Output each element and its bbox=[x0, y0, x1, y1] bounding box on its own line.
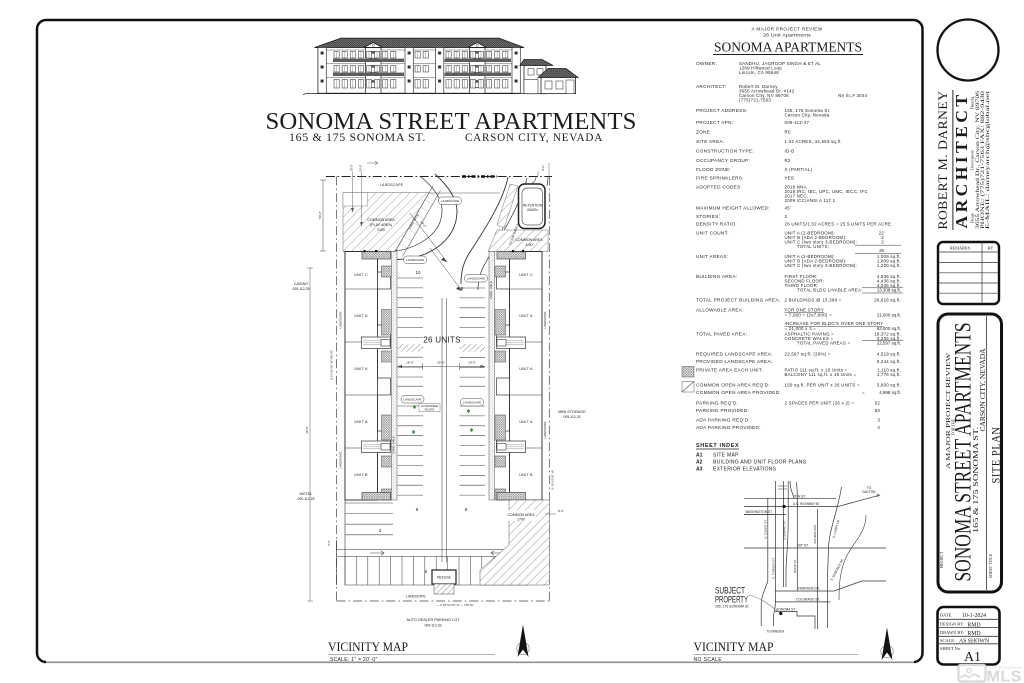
svg-text:165 & 175 SONOMA ST.: 165 & 175 SONOMA ST. bbox=[289, 132, 426, 144]
svg-text:BUILDING AREA:: BUILDING AREA: bbox=[696, 274, 737, 279]
svg-text:Carson City, Nevada: Carson City, Nevada bbox=[785, 113, 830, 118]
svg-text:AUTO DEALER PARKING LOT: AUTO DEALER PARKING LOT bbox=[406, 618, 460, 622]
svg-text:10T′ ST.: 10T′ ST. bbox=[797, 544, 809, 548]
svg-text:UNIT A: UNIT A bbox=[519, 420, 533, 424]
svg-text:4,998 sq.ft.: 4,998 sq.ft. bbox=[879, 390, 901, 395]
svg-text:CONC. WALK: CONC. WALK bbox=[392, 436, 396, 454]
svg-text:5'-0": 5'-0" bbox=[327, 540, 331, 546]
svg-text:REFUSE: REFUSE bbox=[437, 576, 451, 580]
svg-text:(775)721-7563: (775)721-7563 bbox=[739, 98, 771, 103]
svg-text:BUILDING AND UNIT FLOOR PL: BUILDING AND UNIT FLOOR PLANS bbox=[713, 460, 807, 466]
svg-text:10: 10 bbox=[415, 270, 421, 275]
svg-text:R2: R2 bbox=[785, 158, 791, 163]
svg-text:N 19°52′30″ W 300.00′: N 19°52′30″ W 300.00′ bbox=[330, 350, 334, 381]
svg-text:SITE MAP: SITE MAP bbox=[713, 453, 739, 459]
svg-text:U.S. HIGHWAY 50: U.S. HIGHWAY 50 bbox=[793, 502, 820, 506]
svg-text:MOTEL: MOTEL bbox=[299, 492, 312, 496]
svg-text:SITE PLAN: SITE PLAN bbox=[991, 426, 1003, 483]
svg-text:UNIT A: UNIT A bbox=[519, 367, 533, 371]
svg-text:X (PARTIAL): X (PARTIAL) bbox=[785, 167, 813, 172]
svg-text:ARCHITECT:: ARCHITECT: bbox=[696, 84, 727, 89]
svg-text:22,597 sq.ft. (20%) =: 22,597 sq.ft. (20%) = bbox=[785, 352, 831, 357]
svg-text:RMD: RMD bbox=[967, 622, 980, 628]
svg-text:TOTAL PAVED AREAS =: TOTAL PAVED AREAS = bbox=[797, 341, 851, 346]
svg-text:PROVIDED LANDSCAPE AREA:: PROVIDED LANDSCAPE AREA: bbox=[696, 359, 773, 364]
svg-text:2100: 2100 bbox=[377, 228, 385, 232]
svg-text:DRAWN BY:: DRAWN BY: bbox=[940, 630, 964, 635]
svg-text:3,900 sq.ft.: 3,900 sq.ft. bbox=[877, 383, 901, 388]
svg-text:ADA PARKING PROVIDED:: ADA PARKING PROVIDED: bbox=[696, 425, 761, 430]
svg-text:OWNER:: OWNER: bbox=[696, 61, 717, 66]
svg-text:SONOMA STREET APARTMENTS: SONOMA STREET APARTMENTS bbox=[266, 108, 637, 135]
svg-text:ALLOWABLE AREA:: ALLOWABLE AREA: bbox=[696, 308, 744, 313]
svg-text:ZONE:: ZONE: bbox=[696, 130, 712, 135]
svg-text:30'-0": 30'-0" bbox=[305, 426, 309, 434]
svg-text:TO MINDEN: TO MINDEN bbox=[766, 630, 785, 634]
svg-text:26 UNITS: 26 UNITS bbox=[423, 336, 461, 345]
svg-text:A MAJOR PROJECT REVIEW: A MAJOR PROJECT REVIEW bbox=[752, 27, 823, 32]
svg-text:ARCHITECT: ARCHITECT bbox=[952, 92, 971, 229]
svg-text:4,50: 4,50 bbox=[526, 243, 533, 247]
svg-text:MLS: MLS bbox=[987, 669, 1022, 683]
svg-text:ROOP ST.: ROOP ST. bbox=[793, 559, 797, 573]
svg-text:63,000 sq.ft.: 63,000 sq.ft. bbox=[877, 326, 901, 331]
svg-text:STEWART ST.: STEWART ST. bbox=[783, 520, 787, 540]
svg-text:SITE AREA:: SITE AREA: bbox=[696, 139, 725, 144]
svg-text:2 BUILDINGS @ 13,308 =: 2 BUILDINGS @ 13,308 = bbox=[785, 298, 842, 303]
svg-text:LANDSCAPE: LANDSCAPE bbox=[339, 311, 343, 328]
svg-text:DENSITY RATIO:: DENSITY RATIO: bbox=[696, 222, 737, 227]
svg-text:CONSTRUCTION TYPE:: CONSTRUCTION TYPE: bbox=[696, 149, 754, 154]
svg-text:CARSON CITY, NEVADA: CARSON CITY, NEVADA bbox=[465, 132, 603, 144]
svg-text:2 SPACES PER UNIT (26 x 2): 2 SPACES PER UNIT (26 x 2) = bbox=[785, 401, 855, 406]
svg-text:9'-6": 9'-6" bbox=[541, 165, 545, 171]
svg-text:ID-B: ID-B bbox=[785, 149, 795, 154]
svg-text:26'-0": 26'-0" bbox=[437, 361, 445, 365]
svg-text:PROJECT: PROJECT bbox=[939, 551, 944, 568]
svg-text:26,616 sq.ft.: 26,616 sq.ft. bbox=[874, 298, 901, 303]
svg-text:009-112-25: 009-112-25 bbox=[297, 497, 314, 501]
svg-text:VICINITY MAP: VICINITY MAP bbox=[328, 640, 408, 654]
svg-text:53: 53 bbox=[875, 408, 881, 413]
svg-text:RC: RC bbox=[785, 130, 792, 135]
svg-text:TOTAL BLDG LIVABLE AREA:: TOTAL BLDG LIVABLE AREA: bbox=[797, 288, 863, 293]
svg-text:4,519 sq.ft.: 4,519 sq.ft. bbox=[877, 352, 901, 357]
svg-text:SHEET INDEX: SHEET INDEX bbox=[696, 443, 739, 449]
svg-text:EXTERIOR ELEVATIONS: EXTERIOR ELEVATIONS bbox=[713, 467, 777, 473]
svg-text:DAYTON: DAYTON bbox=[863, 490, 877, 494]
svg-text:18'-0": 18'-0" bbox=[406, 361, 414, 365]
svg-text:A2: A2 bbox=[696, 460, 703, 466]
svg-text:TOTAL PAVED AREA:: TOTAL PAVED AREA: bbox=[696, 332, 747, 337]
svg-text:S. CURRY ST.: S. CURRY ST. bbox=[764, 519, 768, 539]
svg-text:52: 52 bbox=[875, 401, 881, 406]
svg-text:NO SCALE: NO SCALE bbox=[694, 657, 723, 663]
svg-text:009-112-25: 009-112-25 bbox=[292, 287, 309, 291]
svg-text:8'-0": 8'-0" bbox=[558, 509, 564, 513]
svg-text:ROBERT M. DARNEY: ROBERT M. DARNEY bbox=[935, 90, 950, 229]
svg-text:PRIVATE AREA EACH UNIT:: PRIVATE AREA EACH UNIT: bbox=[696, 368, 763, 373]
svg-text:RETENTION: RETENTION bbox=[523, 204, 543, 208]
svg-text:=: = bbox=[862, 390, 865, 395]
svg-text:A1: A1 bbox=[964, 650, 981, 665]
svg-text:COMMON AREA: COMMON AREA bbox=[515, 238, 543, 242]
svg-text:10-1-2024: 10-1-2024 bbox=[962, 613, 986, 619]
svg-text:UNIT B: UNIT B bbox=[519, 473, 533, 477]
svg-text:5,244 sq.ft.: 5,244 sq.ft. bbox=[877, 359, 901, 364]
svg-text:PROJECT APN:: PROJECT APN: bbox=[696, 120, 733, 125]
svg-text:UNIT AREAS:: UNIT AREAS: bbox=[696, 254, 728, 259]
svg-text:UNIT A: UNIT A bbox=[354, 420, 368, 424]
svg-text:VICINITY MAP: VICINITY MAP bbox=[694, 640, 774, 654]
svg-text:26: 26 bbox=[879, 248, 884, 253]
svg-text:COMMON AREA: COMMON AREA bbox=[507, 513, 535, 517]
svg-text:CASINO: CASINO bbox=[294, 282, 309, 286]
svg-text:SCALE: 1″ = 20′-0″: SCALE: 1″ = 20′-0″ bbox=[330, 657, 378, 663]
svg-text:SALIMAN RD.: SALIMAN RD. bbox=[813, 524, 817, 543]
svg-text:2: 2 bbox=[881, 240, 884, 245]
svg-text:E-MAIL: darneyarch@sbcgloba: E-MAIL: darneyarch@sbcglobal.net bbox=[985, 90, 991, 229]
svg-text:165 & 175 SONOMA ST.: 165 & 175 SONOMA ST. bbox=[971, 427, 980, 533]
svg-text:BALCONY 111 sq.ft. x 16 Units: BALCONY 111 sq.ft. x 16 Units = bbox=[785, 372, 857, 377]
svg-text:LANDSCAPE: LANDSCAPE bbox=[543, 421, 547, 438]
svg-text:RMD: RMD bbox=[967, 631, 980, 637]
svg-text:STORIES:: STORIES: bbox=[696, 214, 720, 219]
svg-text:1700: 1700 bbox=[517, 518, 525, 522]
svg-text:TOTAL UNITS:: TOTAL UNITS: bbox=[797, 244, 829, 249]
svg-text:SHEET TITLE: SHEET TITLE bbox=[988, 553, 993, 578]
svg-text:3: 3 bbox=[785, 214, 788, 219]
svg-text:LANDSCAPE: LANDSCAPE bbox=[543, 311, 547, 328]
svg-text:18'-0": 18'-0" bbox=[468, 361, 476, 365]
svg-text:50'-0": 50'-0" bbox=[318, 211, 322, 219]
svg-text:FAIRVIEW DR.: FAIRVIEW DR. bbox=[798, 587, 820, 591]
svg-text:OCCUPANCY GROUP:: OCCUPANCY GROUP: bbox=[696, 158, 750, 163]
svg-text:LANDSCAPE: LANDSCAPE bbox=[463, 401, 481, 405]
svg-text:ROUTE: ROUTE bbox=[425, 408, 435, 412]
svg-text:N 19°52′30″ W: N 19°52′30″ W bbox=[551, 470, 555, 490]
svg-text:S. CARSON ST.: S. CARSON ST. bbox=[771, 557, 775, 579]
svg-text:MINI STORAGE: MINI STORAGE bbox=[558, 410, 586, 414]
svg-text:TOTAL PROJECT BUILDING AREA: TOTAL PROJECT BUILDING AREA: bbox=[696, 298, 781, 303]
svg-text:LANDSCAPE: LANDSCAPE bbox=[441, 199, 459, 203]
svg-text:UNIT A: UNIT A bbox=[354, 314, 368, 318]
svg-text:CARSON CITY, NEVADA: CARSON CITY, NEVADA bbox=[978, 348, 987, 432]
svg-text:SONOMA APARTMENTS: SONOMA APARTMENTS bbox=[714, 40, 862, 55]
svg-text:UNIT B: UNIT B bbox=[354, 473, 368, 477]
svg-text:165, 175 SONOMA St.: 165, 175 SONOMA St. bbox=[715, 605, 749, 609]
svg-text:UNIT C: UNIT C bbox=[354, 273, 368, 277]
svg-text:(PLAY AREA): (PLAY AREA) bbox=[370, 223, 392, 227]
svg-text:150 sq.ft. PER UNIT x 26 UNI: 150 sq.ft. PER UNIT x 26 UNITS = bbox=[785, 383, 861, 388]
svg-text:YES: YES bbox=[785, 176, 795, 181]
svg-text:UNIT C: UNIT C bbox=[519, 273, 533, 277]
svg-text:PARKING PROVIDED:: PARKING PROVIDED: bbox=[696, 408, 749, 413]
svg-text:= 7,000 + (2x7,000) =: = 7,000 + (2x7,000) = bbox=[785, 312, 833, 317]
svg-text:PROPERTY: PROPERTY bbox=[715, 595, 748, 605]
svg-text:1,776 sq.ft.: 1,776 sq.ft. bbox=[877, 372, 901, 377]
svg-text:19'-6": 19'-6" bbox=[350, 164, 354, 171]
svg-text:PARKING REQ'D:: PARKING REQ'D: bbox=[696, 401, 738, 406]
svg-text:WASHINGTON ST.: WASHINGTON ST. bbox=[745, 510, 772, 514]
svg-text:A1: A1 bbox=[696, 453, 703, 459]
svg-text:SHEET No.: SHEET No. bbox=[940, 646, 961, 651]
svg-text:LANDSCAPE: LANDSCAPE bbox=[380, 183, 404, 187]
svg-text:45': 45' bbox=[785, 206, 791, 211]
svg-text:UNIT A: UNIT A bbox=[519, 314, 533, 318]
svg-text:009-112-33: 009-112-33 bbox=[424, 624, 441, 628]
svg-text:009-112-25: 009-112-25 bbox=[563, 415, 580, 419]
svg-text:2009 ICC/ANSI A 117.1: 2009 ICC/ANSI A 117.1 bbox=[785, 198, 836, 203]
svg-text:009-112-47: 009-112-47 bbox=[785, 120, 810, 125]
svg-text:26 UNITS/1.02 ACRES = 25.5: 26 UNITS/1.02 ACRES = 25.5 UNITS PER ACR… bbox=[785, 222, 892, 227]
svg-text:COLORADO ST.: COLORADO ST. bbox=[796, 598, 820, 602]
svg-text:= 21,000 x 3 =: = 21,000 x 3 = bbox=[785, 326, 817, 331]
svg-text:ADOPTED CODES:: ADOPTED CODES: bbox=[696, 185, 742, 190]
svg-text:FIRE SPRINKLERS:: FIRE SPRINKLERS: bbox=[696, 176, 744, 181]
svg-text:MAXIMUM HEIGHT ALLOWED:: MAXIMUM HEIGHT ALLOWED: bbox=[696, 206, 770, 211]
svg-text:AS SHOWN: AS SHOWN bbox=[959, 639, 990, 645]
svg-text:26'-0": 26'-0" bbox=[359, 164, 363, 171]
svg-text:13,308 sq.ft.: 13,308 sq.ft. bbox=[877, 288, 901, 293]
svg-text:REMARKS: REMARKS bbox=[950, 246, 971, 251]
svg-text:COMMON AREA: COMMON AREA bbox=[367, 218, 395, 222]
svg-text:BY: BY bbox=[988, 246, 994, 251]
svg-text:SCALE:: SCALE: bbox=[940, 638, 955, 643]
svg-text:LANDSCAPE: LANDSCAPE bbox=[406, 595, 425, 599]
svg-text:LANDSCAPE: LANDSCAPE bbox=[406, 258, 424, 262]
svg-text:Lincoln, CA 95648: Lincoln, CA 95648 bbox=[739, 70, 779, 75]
svg-text:DESIGN BY:: DESIGN BY: bbox=[940, 622, 964, 627]
svg-text:5TH ST.: 5TH ST. bbox=[794, 494, 806, 498]
svg-text:COMMON OPEN AREA PROVIDED:: COMMON OPEN AREA PROVIDED: bbox=[696, 390, 781, 395]
svg-text:A3: A3 bbox=[696, 467, 703, 473]
svg-text:SONOMA ST.: SONOMA ST. bbox=[776, 607, 796, 611]
svg-text:COMMON OPEN AREA REQ'D:: COMMON OPEN AREA REQ'D: bbox=[696, 383, 770, 388]
svg-text:LANDSCAPE: LANDSCAPE bbox=[339, 451, 343, 468]
svg-text:22,597 sq.ft.: 22,597 sq.ft. bbox=[877, 341, 901, 346]
svg-text:26 Unit Apartments: 26 Unit Apartments bbox=[763, 33, 812, 38]
svg-text:DATE:: DATE: bbox=[940, 613, 952, 618]
svg-text:1,200 sq.ft.: 1,200 sq.ft. bbox=[877, 263, 901, 268]
svg-text:REQUIRED LANDSCAPE AREA:: REQUIRED LANDSCAPE AREA: bbox=[696, 352, 773, 357]
svg-text:LANDSCAPE: LANDSCAPE bbox=[403, 398, 421, 402]
svg-text:1.02 ACRES, 44,553 sq.ft.: 1.02 ACRES, 44,553 sq.ft. bbox=[785, 139, 843, 144]
svg-text:FLOOD ZONE:: FLOOD ZONE: bbox=[696, 167, 731, 172]
svg-text:— S 89°52′30″ W — 150.00′: — S 89°52′30″ W — 150.00′ bbox=[436, 603, 474, 607]
svg-text:NV lic.# 3044: NV lic.# 3044 bbox=[838, 93, 868, 98]
svg-text:UNIT A: UNIT A bbox=[354, 367, 368, 371]
svg-text:LANDSCAPE: LANDSCAPE bbox=[467, 277, 485, 281]
svg-text:21,000 sq.ft.: 21,000 sq.ft. bbox=[877, 312, 901, 317]
svg-text:UNIT C (two story 3-BEDROOM):: UNIT C (two story 3-BEDROOM): bbox=[785, 263, 858, 268]
svg-text:4: 4 bbox=[877, 425, 880, 430]
svg-text:CONC. WALK: CONC. WALK bbox=[489, 281, 493, 299]
svg-text:PROJECT ADDRESS:: PROJECT ADDRESS: bbox=[696, 108, 748, 113]
svg-text:UNIT COUNT:: UNIT COUNT: bbox=[696, 231, 729, 236]
svg-text:BASIN: BASIN bbox=[527, 208, 538, 212]
svg-text:ADA PARKING REQ'D:: ADA PARKING REQ'D: bbox=[696, 418, 750, 423]
svg-text:3: 3 bbox=[877, 418, 880, 423]
